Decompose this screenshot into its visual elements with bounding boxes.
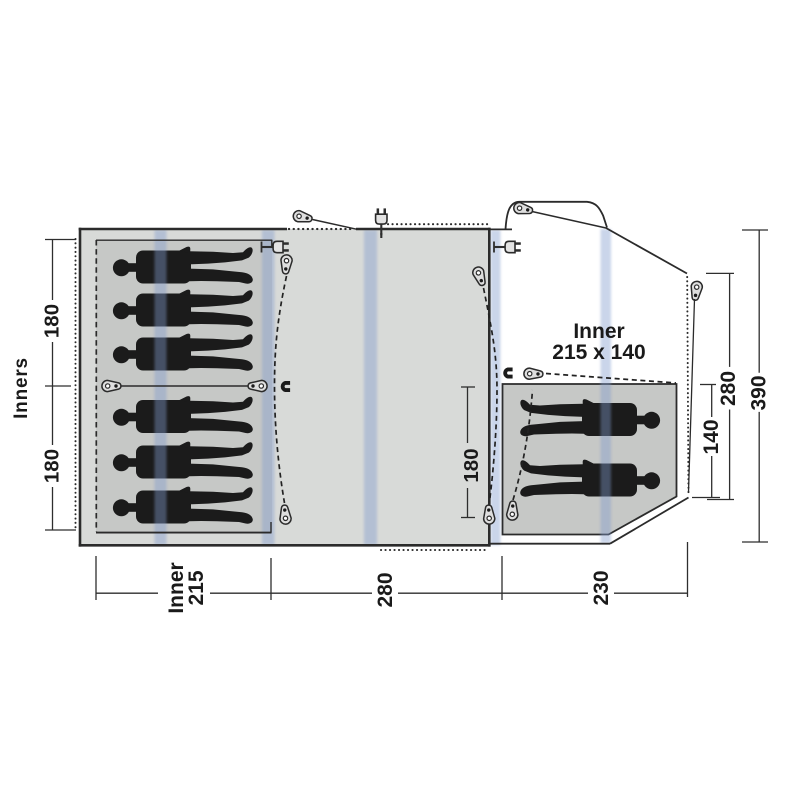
svg-text:180: 180: [460, 448, 483, 482]
svg-text:280: 280: [717, 371, 740, 406]
svg-text:280: 280: [374, 572, 397, 607]
svg-text:Inner: Inner: [573, 320, 624, 343]
svg-text:230: 230: [590, 570, 613, 605]
svg-text:180: 180: [41, 304, 64, 338]
svg-text:Inners: Inners: [11, 357, 32, 419]
svg-text:390: 390: [748, 375, 771, 410]
svg-text:180: 180: [41, 449, 64, 483]
svg-text:140: 140: [700, 419, 723, 454]
svg-text:215 x 140: 215 x 140: [552, 341, 645, 364]
svg-text:215: 215: [185, 570, 208, 605]
